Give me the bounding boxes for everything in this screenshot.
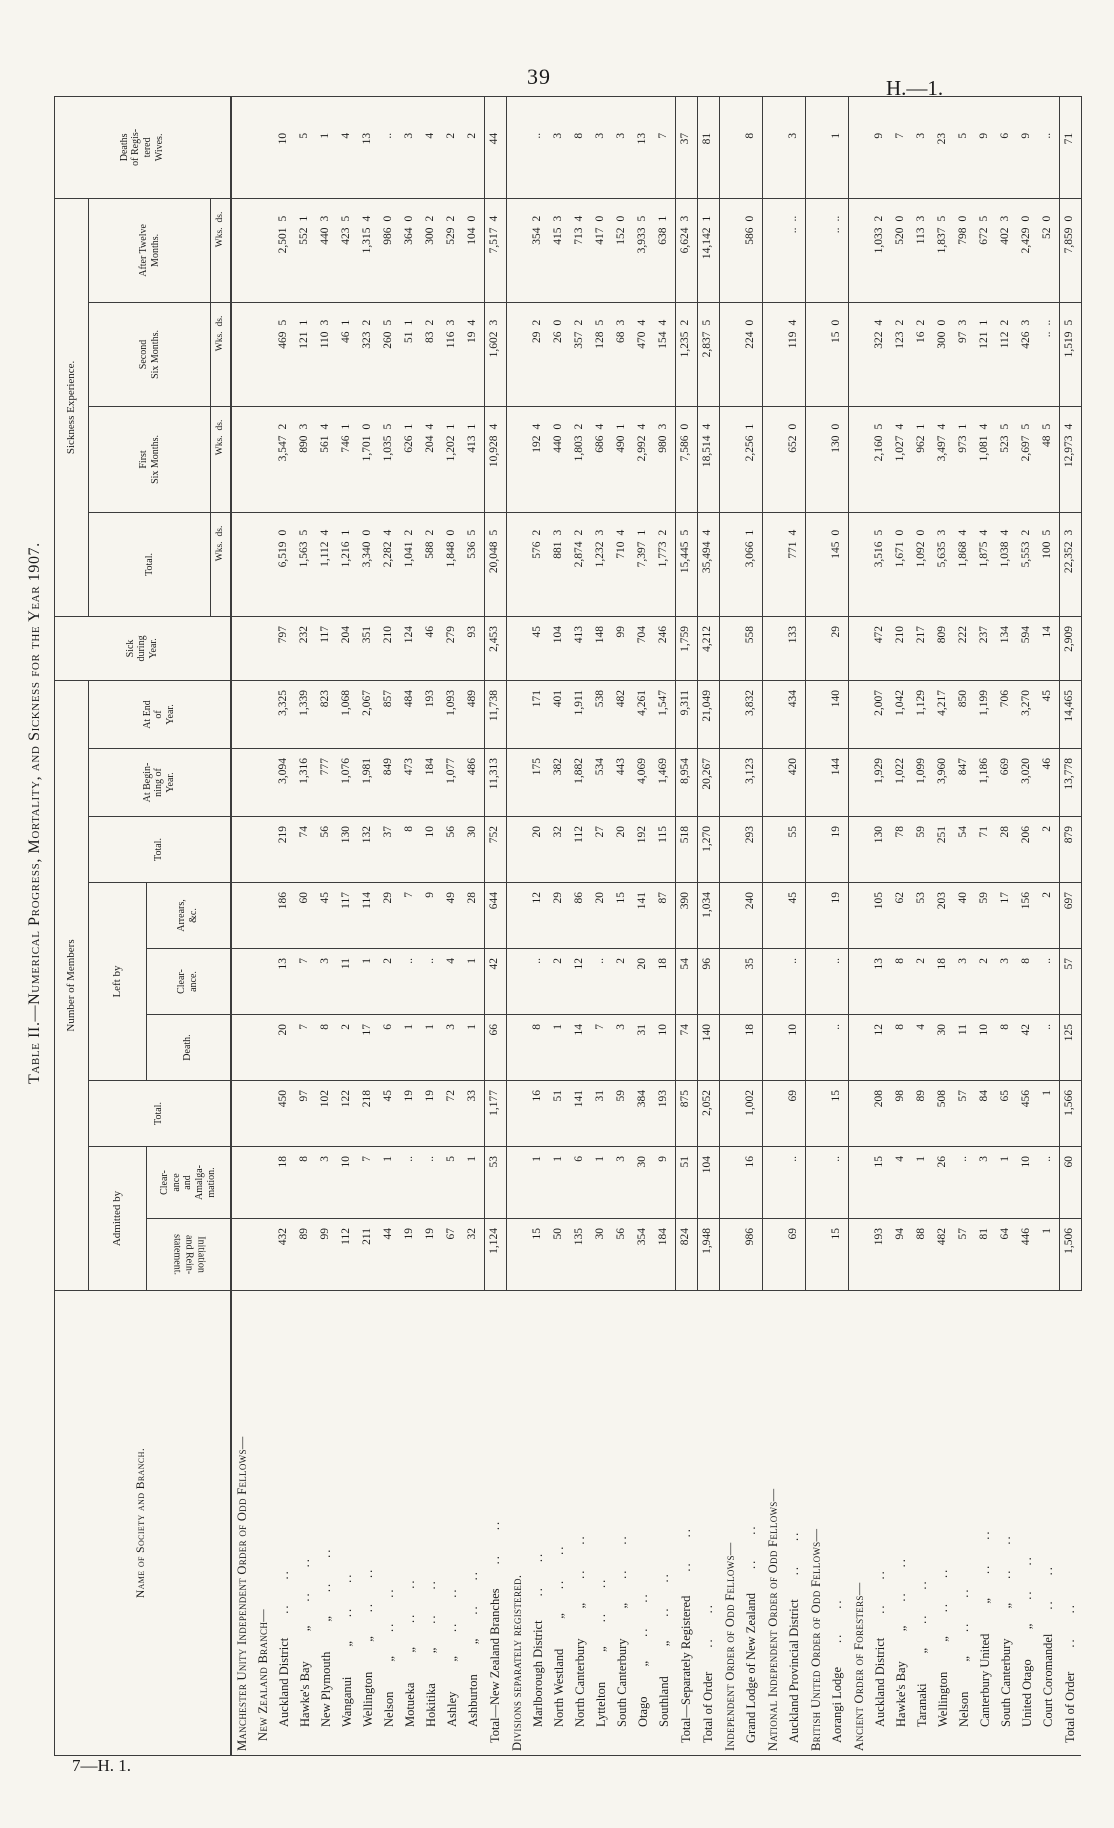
society-name: South Canterbury„.... — [996, 1291, 1017, 1756]
cell-first-six-wks: 10,928 — [484, 432, 506, 512]
cell-second-six-wks — [506, 328, 528, 406]
society-name: Taranaki„.... — [912, 1291, 933, 1756]
table-row: Hawke's Bay„....898977760741,3161,339232… — [295, 96, 316, 1755]
cell-deaths-of-registered-wives: 13 — [633, 96, 654, 198]
cell-sickness-total-wks: 710 — [612, 538, 633, 616]
cell-at-end-of-year: 21,049 — [697, 680, 719, 748]
cell-sick-during-year — [848, 616, 870, 680]
cell-arrears: 17 — [996, 883, 1017, 949]
cell-sickness-total-wks: 576 — [528, 538, 549, 616]
cell-second-six-wks: 1,235 — [675, 328, 697, 406]
cell-at-beginning-of-year: 669 — [996, 749, 1017, 817]
leader-dots: .. — [936, 1568, 950, 1578]
society-name: Lyttelton„.... — [591, 1291, 612, 1756]
cell-clearance: 2 — [912, 949, 933, 1015]
cell-second-six-wks: 469 — [274, 328, 295, 406]
cell-sickness-total-wks: 1,563 — [295, 538, 316, 616]
cell-at-end-of-year: 9,311 — [675, 680, 697, 748]
cell-at-beginning-of-year — [805, 749, 827, 817]
cell-second-six-wks: 116 — [442, 328, 463, 406]
cell-sickness-total-ds: 0 — [274, 512, 295, 538]
cell-after-twelve-wks: 14,142 — [697, 224, 719, 302]
cell-total-left: 56 — [442, 817, 463, 883]
cell-total-admitted — [719, 1081, 741, 1147]
cell-at-beginning-of-year: 4,069 — [633, 749, 654, 817]
cell-death: 11 — [954, 1015, 975, 1081]
cell-second-six-wks: 97 — [954, 328, 975, 406]
cell-sick-during-year: 2,909 — [1059, 616, 1081, 680]
leader-dots: .. — [787, 1531, 801, 1541]
cell-second-six-ds: 2 — [675, 302, 697, 328]
table-row: Hokitika„....19..191..910184193465882204… — [421, 96, 442, 1755]
society-name: Auckland District.... — [274, 1291, 295, 1756]
cell-clearance-amalgamation: 10 — [337, 1147, 358, 1219]
cell-death: 31 — [633, 1015, 654, 1081]
cell-deaths-of-registered-wives: 4 — [421, 96, 442, 198]
cell-clearance-amalgamation: 1 — [379, 1147, 400, 1219]
society-name: Court Coromandel.... — [1038, 1291, 1060, 1756]
cell-after-twelve-ds: 2 — [528, 198, 549, 224]
cell-first-six-ds — [762, 406, 784, 432]
cell-at-beginning-of-year: 3,094 — [274, 749, 295, 817]
rotated-sheet: Table II.—Numerical Progress, Mortality,… — [26, 96, 1082, 1756]
cell-at-beginning-of-year: 486 — [463, 749, 485, 817]
cell-initiation-reinstatement — [506, 1219, 528, 1291]
cell-sickness-total-wks — [231, 538, 253, 616]
cell-second-six-wks: 426 — [1017, 328, 1038, 406]
cell-after-twelve-wks: 113 — [912, 224, 933, 302]
cell-death: 74 — [675, 1015, 697, 1081]
cell-after-twelve-wks: 7,859 — [1059, 224, 1081, 302]
ditto-mark: „ — [894, 1626, 908, 1632]
cell-at-beginning-of-year: 3,123 — [741, 749, 763, 817]
cell-second-six-wks: 1,519 — [1059, 328, 1081, 406]
cell-at-beginning-of-year: 382 — [549, 749, 570, 817]
cell-at-beginning-of-year — [719, 749, 741, 817]
cell-first-six-wks: 413 — [463, 432, 485, 512]
cell-sickness-total-ds: 1 — [337, 512, 358, 538]
cell-initiation-reinstatement: 354 — [633, 1219, 654, 1291]
cell-second-six-ds: 3 — [442, 302, 463, 328]
cell-arrears: 28 — [463, 883, 485, 949]
ditto-mark: „ — [424, 1648, 438, 1654]
cell-initiation-reinstatement: 57 — [954, 1219, 975, 1291]
cell-at-end-of-year: 2,067 — [358, 680, 379, 748]
header-sickness-experience: Sickness Experience. — [55, 198, 89, 616]
cell-deaths-of-registered-wives: 10 — [274, 96, 295, 198]
cell-clearance-amalgamation: 3 — [975, 1147, 996, 1219]
cell-total-left: 2 — [1038, 817, 1060, 883]
cell-first-six-ds: 4 — [1059, 406, 1081, 432]
cell-after-twelve-ds: 5 — [633, 198, 654, 224]
cell-clearance-amalgamation: .. — [954, 1147, 975, 1219]
cell-first-six-wks: 973 — [954, 432, 975, 512]
cell-after-twelve-wks: 986 — [379, 224, 400, 302]
cell-clearance: 4 — [442, 949, 463, 1015]
leader-dots: .. — [552, 1579, 566, 1589]
society-name: Grand Lodge of New Zealand.... — [741, 1291, 763, 1756]
cell-first-six-wks: 561 — [316, 432, 337, 512]
cell-sick-during-year: 148 — [591, 616, 612, 680]
cell-after-twelve-wks — [231, 224, 253, 302]
cell-clearance — [848, 949, 870, 1015]
cell-clearance-amalgamation: 3 — [612, 1147, 633, 1219]
leader-dots: .. — [657, 1606, 671, 1616]
cell-clearance-amalgamation — [253, 1147, 274, 1219]
table-row: Motueka„....19..191..784734841241,041262… — [400, 96, 421, 1755]
cell-second-six-wks: 323 — [358, 328, 379, 406]
cell-first-six-ds — [848, 406, 870, 432]
cell-sickness-total-ds — [253, 512, 274, 538]
header-sickness-total: Total. — [89, 512, 211, 616]
cell-sickness-total-wks: 35,494 — [697, 538, 719, 616]
cell-clearance-amalgamation: .. — [1038, 1147, 1060, 1219]
cell-after-twelve-wks: 2,501 — [274, 224, 295, 302]
cell-after-twelve-wks: 52 — [1038, 224, 1060, 302]
cell-sickness-total-ds: 4 — [954, 512, 975, 538]
cell-second-six-wks: .. — [1038, 328, 1060, 406]
ditto-mark: „ — [594, 1646, 608, 1652]
cell-first-six-wks: 1,035 — [379, 432, 400, 512]
header-initiation-reinstatement: Initiation and Rein- statement. — [147, 1219, 231, 1291]
cell-after-twelve-wks: 1,315 — [358, 224, 379, 302]
cell-at-end-of-year — [762, 680, 784, 748]
ditto-mark: „ — [657, 1641, 671, 1647]
cell-at-end-of-year — [231, 680, 253, 748]
leader-dots: .. — [701, 1637, 715, 1647]
cell-second-six-ds — [253, 302, 274, 328]
cell-sickness-total-ds: 1 — [633, 512, 654, 538]
cell-sickness-total-wks: 7,397 — [633, 538, 654, 616]
ditto-mark: „ — [999, 1603, 1013, 1609]
section-heading-row: Divisions separately registered. — [506, 96, 528, 1755]
cell-first-six-wks — [506, 432, 528, 512]
cell-deaths-of-registered-wives: 2 — [442, 96, 463, 198]
cell-clearance-amalgamation: 3 — [316, 1147, 337, 1219]
table-row: Auckland District....4321845020131862193… — [274, 96, 295, 1755]
cell-sickness-total-ds: 4 — [316, 512, 337, 538]
cell-second-six-ds: 1 — [337, 302, 358, 328]
cell-sickness-total-wks — [506, 538, 528, 616]
cell-sickness-total-wks: 881 — [549, 538, 570, 616]
leader-dots: .. — [679, 1527, 693, 1537]
cell-deaths-of-registered-wives: 3 — [400, 96, 421, 198]
table-row: Ashley„....675723449561,0771,0932791,848… — [442, 96, 463, 1755]
leader-dots: .. — [999, 1534, 1013, 1544]
leader-dots: .. — [957, 1588, 971, 1598]
cell-at-beginning-of-year: 777 — [316, 749, 337, 817]
cell-initiation-reinstatement: 94 — [891, 1219, 912, 1291]
cell-sick-during-year: 246 — [654, 616, 676, 680]
cell-first-six-ds: 1 — [741, 406, 763, 432]
society-name: Ashley„.... — [442, 1291, 463, 1756]
cell-arrears: 49 — [442, 883, 463, 949]
cell-sickness-total-wks — [762, 538, 784, 616]
table-row: New Plymouth„....9931028345567778231171,… — [316, 96, 337, 1755]
cell-initiation-reinstatement: 211 — [358, 1219, 379, 1291]
cell-death: 10 — [784, 1015, 806, 1081]
cell-first-six-wks: 652 — [784, 432, 806, 512]
cell-deaths-of-registered-wives: .. — [528, 96, 549, 198]
cell-after-twelve-wks: 3,933 — [633, 224, 654, 302]
cell-total-left: 752 — [484, 817, 506, 883]
cell-first-six-wks: 962 — [912, 432, 933, 512]
cell-after-twelve-wks: 104 — [463, 224, 485, 302]
cell-first-six-wks: 490 — [612, 432, 633, 512]
cell-death — [805, 1015, 827, 1081]
cell-first-six-ds: 1 — [912, 406, 933, 432]
cell-clearance — [231, 949, 253, 1015]
cell-clearance: .. — [784, 949, 806, 1015]
cell-clearance: 2 — [379, 949, 400, 1015]
cell-total-left: 219 — [274, 817, 295, 883]
leader-dots: .. — [382, 1588, 396, 1598]
ditto-mark: „ — [403, 1647, 417, 1653]
cell-clearance-amalgamation: 4 — [891, 1147, 912, 1219]
cell-arrears — [231, 883, 253, 949]
cell-after-twelve-wks — [762, 224, 784, 302]
cell-total-left: 251 — [933, 817, 954, 883]
society-name: Wanganui„.... — [337, 1291, 358, 1756]
cell-initiation-reinstatement: 1 — [1038, 1219, 1060, 1291]
ditto-mark: „ — [573, 1603, 587, 1609]
cell-after-twelve-wks: 300 — [421, 224, 442, 302]
cell-first-six-ds: 4 — [528, 406, 549, 432]
cell-initiation-reinstatement: 135 — [570, 1219, 591, 1291]
cell-initiation-reinstatement: 64 — [996, 1219, 1017, 1291]
cell-at-end-of-year: 482 — [612, 680, 633, 748]
header-total-left: Total. — [89, 817, 231, 883]
cell-total-admitted: 16 — [528, 1081, 549, 1147]
cell-deaths-of-registered-wives: 8 — [741, 96, 763, 198]
cell-total-left: 132 — [358, 817, 379, 883]
cell-total-left: 130 — [870, 817, 891, 883]
section-heading-row: Ancient Order of Foresters— — [848, 96, 870, 1755]
cell-initiation-reinstatement: 15 — [827, 1219, 849, 1291]
cell-after-twelve-ds: 3 — [316, 198, 337, 224]
cell-initiation-reinstatement: 30 — [591, 1219, 612, 1291]
cell-initiation-reinstatement: 184 — [654, 1219, 676, 1291]
cell-total-admitted: 2,052 — [697, 1081, 719, 1147]
cell-total-left: 115 — [654, 817, 676, 883]
cell-second-six-ds: 2 — [912, 302, 933, 328]
cell-at-beginning-of-year: 175 — [528, 749, 549, 817]
cell-sick-during-year — [762, 616, 784, 680]
cell-sick-during-year: 210 — [379, 616, 400, 680]
cell-arrears: 203 — [933, 883, 954, 949]
cell-arrears: 2 — [1038, 883, 1060, 949]
ditto-mark: „ — [361, 1636, 375, 1642]
cell-second-six-ds: 5 — [274, 302, 295, 328]
cell-initiation-reinstatement: 19 — [400, 1219, 421, 1291]
cell-death: .. — [827, 1015, 849, 1081]
cell-deaths-of-registered-wives: 9 — [1017, 96, 1038, 198]
cell-clearance-amalgamation: 18 — [274, 1147, 295, 1219]
cell-initiation-reinstatement: 112 — [337, 1219, 358, 1291]
cell-second-six-ds: 4 — [654, 302, 676, 328]
cell-sickness-total-wks: 1,112 — [316, 538, 337, 616]
cell-initiation-reinstatement: 193 — [870, 1219, 891, 1291]
cell-arrears: 19 — [827, 883, 849, 949]
cell-arrears: 7 — [400, 883, 421, 949]
cell-death — [253, 1015, 274, 1081]
cell-sick-during-year: 104 — [549, 616, 570, 680]
leader-dots: .. — [999, 1569, 1013, 1579]
cell-after-twelve-ds: 3 — [675, 198, 697, 224]
cell-at-end-of-year: 1,068 — [337, 680, 358, 748]
cell-clearance: 12 — [570, 949, 591, 1015]
cell-after-twelve-wks: 354 — [528, 224, 549, 302]
leader-dots: .. — [915, 1579, 929, 1589]
table-row: South Canterbury„....6416583172866970613… — [996, 96, 1017, 1755]
cell-arrears: 60 — [295, 883, 316, 949]
cell-arrears: 114 — [358, 883, 379, 949]
cell-deaths-of-registered-wives — [253, 96, 274, 198]
cell-at-end-of-year: 850 — [954, 680, 975, 748]
cell-first-six-wks — [231, 432, 253, 512]
cell-after-twelve-ds: .. — [827, 198, 849, 224]
cell-sickness-total-ds — [231, 512, 253, 538]
cell-deaths-of-registered-wives: 1 — [316, 96, 337, 198]
cell-total-left: 30 — [463, 817, 485, 883]
leader-dots: .. — [1020, 1555, 1034, 1565]
cell-clearance-amalgamation — [805, 1147, 827, 1219]
leader-dots: .. — [445, 1622, 459, 1632]
cell-death — [506, 1015, 528, 1081]
cell-sick-during-year: 232 — [295, 616, 316, 680]
cell-second-six-wks — [253, 328, 274, 406]
cell-death: 1 — [463, 1015, 485, 1081]
cell-second-six-wks: 112 — [996, 328, 1017, 406]
cell-clearance-amalgamation — [848, 1147, 870, 1219]
cell-second-six-ds: 4 — [784, 302, 806, 328]
cell-total-left: 1,270 — [697, 817, 719, 883]
cell-death: 8 — [316, 1015, 337, 1081]
cell-sick-during-year: 594 — [1017, 616, 1038, 680]
cell-after-twelve-ds: 1 — [295, 198, 316, 224]
cell-after-twelve-wks: 364 — [400, 224, 421, 302]
cell-at-end-of-year: 706 — [996, 680, 1017, 748]
cell-after-twelve-ds: 3 — [996, 198, 1017, 224]
cell-clearance: 13 — [870, 949, 891, 1015]
cell-death — [719, 1015, 741, 1081]
cell-second-six-wks — [848, 328, 870, 406]
cell-deaths-of-registered-wives — [848, 96, 870, 198]
cell-after-twelve-wks: 417 — [591, 224, 612, 302]
cell-clearance — [762, 949, 784, 1015]
cell-total-admitted: 102 — [316, 1081, 337, 1147]
cell-clearance: .. — [421, 949, 442, 1015]
cell-clearance-amalgamation: .. — [400, 1147, 421, 1219]
cell-sickness-total-wks: 1,848 — [442, 538, 463, 616]
cell-clearance-amalgamation: 7 — [358, 1147, 379, 1219]
cell-deaths-of-registered-wives: 44 — [484, 96, 506, 198]
cell-sickness-total-ds: 5 — [484, 512, 506, 538]
cell-sickness-total-ds: 2 — [421, 512, 442, 538]
cell-sick-during-year: 133 — [784, 616, 806, 680]
cell-second-six-ds — [805, 302, 827, 328]
cell-total-left: 130 — [337, 817, 358, 883]
cell-deaths-of-registered-wives: 9 — [975, 96, 996, 198]
cell-sickness-total-wks — [805, 538, 827, 616]
table-row: North Canterbury„....13561411412861121,8… — [570, 96, 591, 1755]
cell-clearance-amalgamation: 5 — [442, 1147, 463, 1219]
cell-clearance-amalgamation: .. — [827, 1147, 849, 1219]
cell-total-admitted — [805, 1081, 827, 1147]
cell-second-six-wks — [231, 328, 253, 406]
cell-first-six-wks: 523 — [996, 432, 1017, 512]
printers-signature: 7—H. 1. — [72, 1756, 131, 1776]
cell-sickness-total-ds: 2 — [570, 512, 591, 538]
cell-clearance-amalgamation: 1 — [912, 1147, 933, 1219]
table-row: Wellington„....21172181711141321,9812,06… — [358, 96, 379, 1755]
cell-deaths-of-registered-wives — [805, 96, 827, 198]
cell-initiation-reinstatement: 19 — [421, 1219, 442, 1291]
cell-total-admitted: 122 — [337, 1081, 358, 1147]
cell-sickness-total-ds: 4 — [996, 512, 1017, 538]
cell-death: 8 — [528, 1015, 549, 1081]
cell-after-twelve-ds: .. — [784, 198, 806, 224]
cell-first-six-ds: 5 — [1017, 406, 1038, 432]
section-heading-row: Manchester Unity Independent Order of Od… — [231, 96, 253, 1755]
cell-second-six-ds: 3 — [954, 302, 975, 328]
section-heading-row: British United Order of Odd Fellows— — [805, 96, 827, 1755]
ditto-mark: „ — [1020, 1624, 1034, 1630]
cell-death: 12 — [870, 1015, 891, 1081]
ditto-mark: „ — [445, 1656, 459, 1662]
cell-at-beginning-of-year: 1,316 — [295, 749, 316, 817]
header-first-six-months: First Six Months. — [89, 406, 211, 512]
leader-dots: .. — [573, 1569, 587, 1579]
society-name: Hokitika„.... — [421, 1291, 442, 1756]
cell-clearance-amalgamation: 1 — [591, 1147, 612, 1219]
cell-sick-during-year: 93 — [463, 616, 485, 680]
ditto-mark: „ — [319, 1616, 333, 1622]
society-name: Auckland Provincial District.... — [784, 1291, 806, 1756]
cell-after-twelve-wks: 552 — [295, 224, 316, 302]
cell-after-twelve-ds: 0 — [591, 198, 612, 224]
cell-sickness-total-ds: 5 — [1038, 512, 1060, 538]
cell-clearance-amalgamation: 9 — [654, 1147, 676, 1219]
cell-after-twelve-wks: 638 — [654, 224, 676, 302]
cell-initiation-reinstatement: 56 — [612, 1219, 633, 1291]
leader-dots: .. — [830, 1633, 844, 1643]
cell-sickness-total-wks: 588 — [421, 538, 442, 616]
cell-total-admitted: 208 — [870, 1081, 891, 1147]
cell-at-end-of-year: 1,093 — [442, 680, 463, 748]
cell-sick-during-year: 45 — [528, 616, 549, 680]
cell-sickness-total-ds: 0 — [442, 512, 463, 538]
cell-at-beginning-of-year: 1,469 — [654, 749, 676, 817]
cell-sickness-total-wks: 100 — [1038, 538, 1060, 616]
cell-second-six-wks: 51 — [400, 328, 421, 406]
section-heading-row: New Zealand Branch— — [253, 96, 274, 1755]
units-ds: ds. — [211, 302, 231, 328]
society-name: Otago„.... — [633, 1291, 654, 1756]
cell-death: 10 — [975, 1015, 996, 1081]
cell-total-admitted: 65 — [996, 1081, 1017, 1147]
cell-clearance-amalgamation — [506, 1147, 528, 1219]
cell-second-six-ds: 2 — [570, 302, 591, 328]
cell-after-twelve-ds — [719, 198, 741, 224]
cell-arrears — [253, 883, 274, 949]
cell-first-six-wks: 2,992 — [633, 432, 654, 512]
cell-after-twelve-wks: 713 — [570, 224, 591, 302]
cell-second-six-ds: 1 — [295, 302, 316, 328]
table-row: Taranaki„....881894253591,0991,1292171,0… — [912, 96, 933, 1755]
cell-sickness-total-wks: 1,041 — [400, 538, 421, 616]
cell-sickness-total-ds — [719, 512, 741, 538]
